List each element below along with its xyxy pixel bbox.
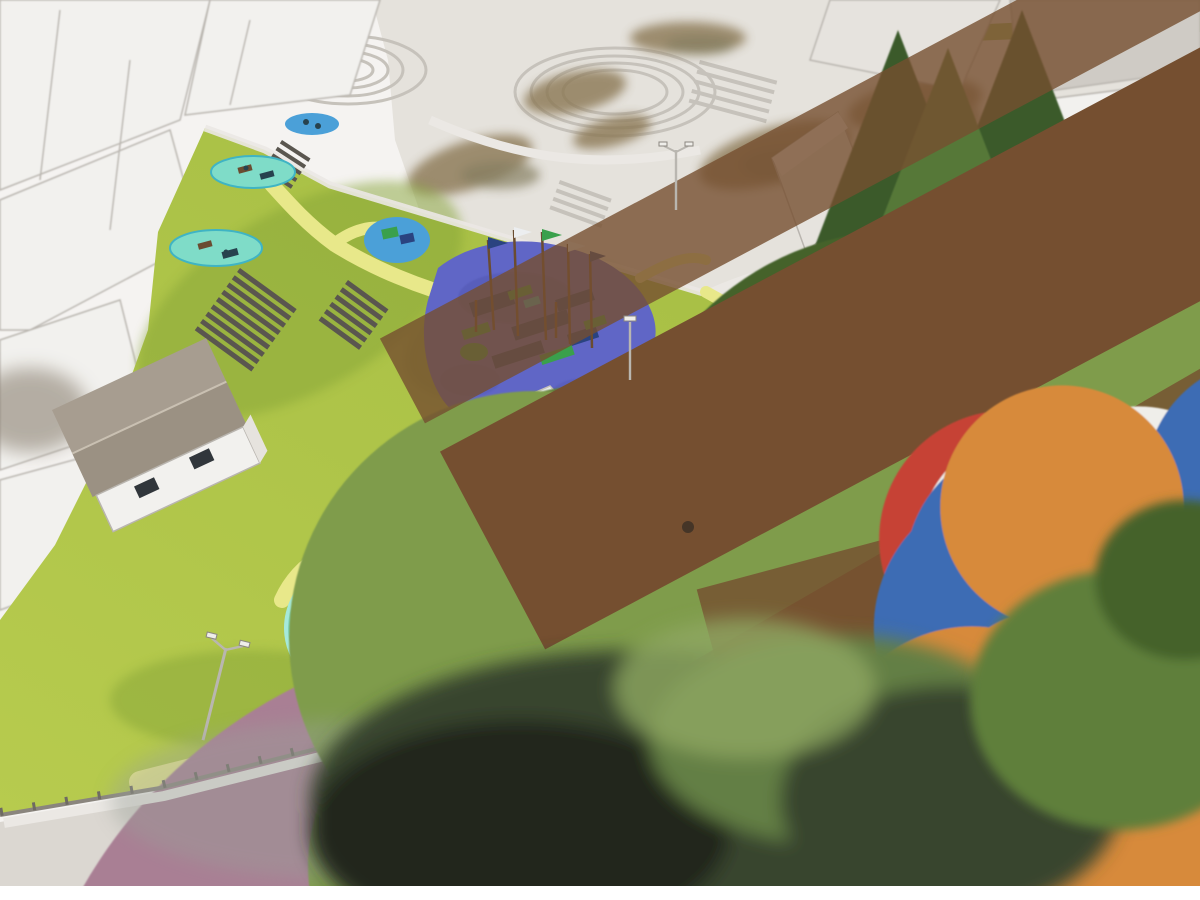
blue-play-circle-left bbox=[364, 217, 430, 263]
picnic-oval-2 bbox=[170, 230, 262, 266]
park-rendering-svg bbox=[0, 0, 1200, 900]
foreground-canopy-light bbox=[615, 618, 875, 758]
blue-pond-top bbox=[285, 113, 339, 135]
trash-bin bbox=[682, 521, 694, 533]
picnic-oval-1 bbox=[211, 156, 295, 188]
park-rendering-image bbox=[0, 0, 1200, 900]
bottom-white-margin bbox=[0, 886, 1200, 900]
